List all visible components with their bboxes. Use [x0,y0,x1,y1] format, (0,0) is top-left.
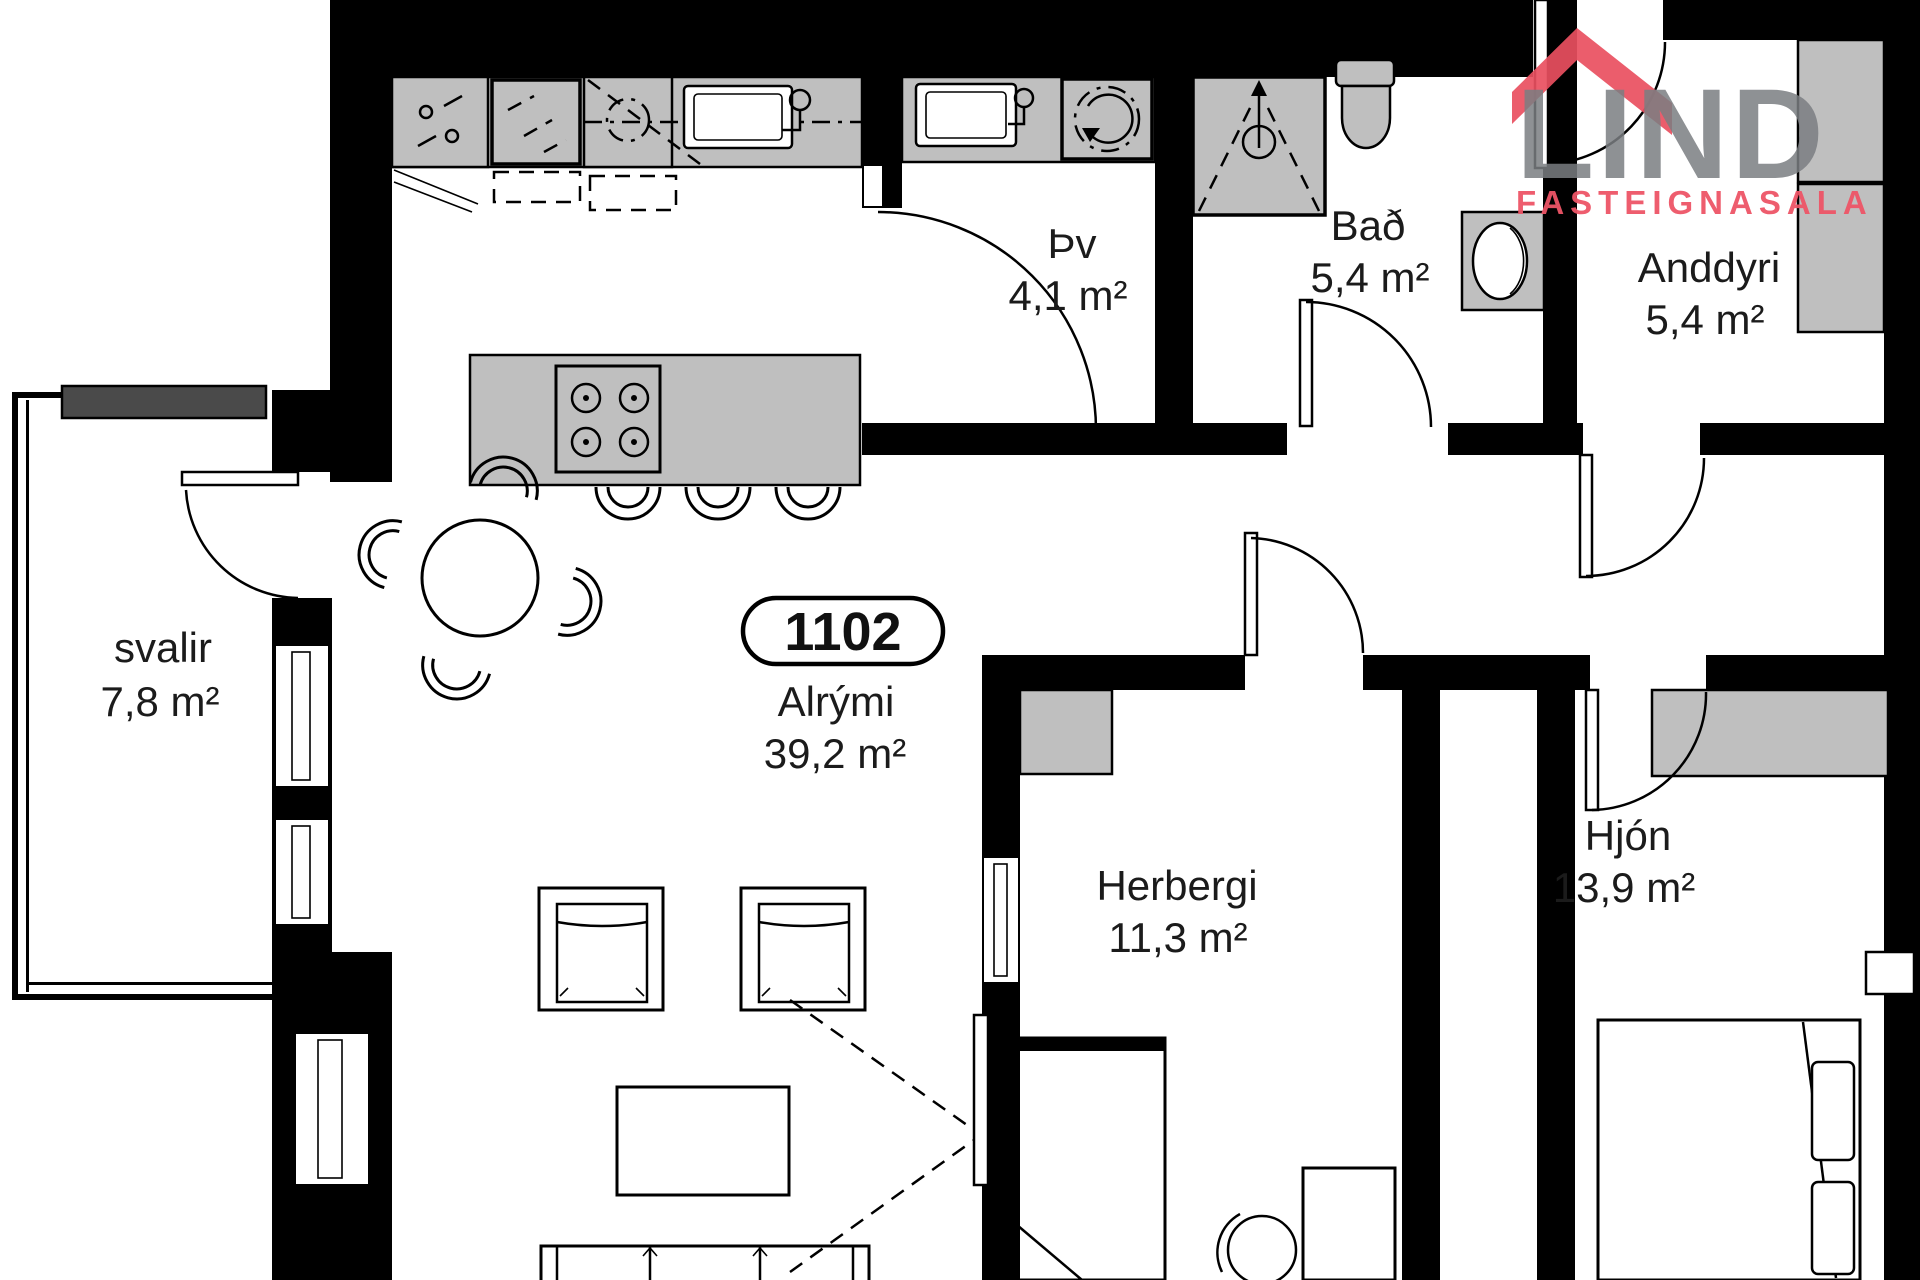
herbergi-bed-fold [1017,1225,1082,1280]
label-bad-name: Bað [1331,202,1406,249]
window-balcony-wall-1 [276,646,328,786]
balcony-rail-bottom-inner [26,982,272,985]
wall-top-right [1663,0,1884,40]
wall-hjon-left [1537,655,1575,1280]
hjon-pillow-2 [1812,1182,1854,1274]
wall-balcony-top [272,390,332,472]
balcony-rail-left [12,392,18,1000]
laundry-sink [916,84,1016,146]
herbergi-door-arc [1251,538,1363,653]
wall-herbergi-right [1402,655,1440,1280]
label-svalir-area: 7,8 m² [100,678,219,725]
tv-icon [974,1015,988,1185]
sofa-dividers [557,1246,853,1280]
kitchen-sink [684,86,792,148]
chair-icon-4 [351,513,401,587]
unit-number-badge: 1102 [743,598,943,664]
label-anddyri-area: 5,4 m² [1645,296,1764,343]
herbergi-door-leaf [1245,533,1257,655]
herbergi-bed-head [1017,1038,1165,1051]
label-hjon-name: Hjón [1585,812,1671,859]
label-thv-name: Þv [1047,220,1096,267]
windows [276,166,1443,1184]
balcony-rail-left-inner [26,400,29,992]
burner-dot-1 [583,395,589,401]
burner-dot-4 [631,439,637,445]
dishwasher-projection [590,176,676,210]
window-balcony-wall-2 [276,820,328,924]
unit-number: 1102 [784,602,901,662]
fridge [492,80,580,164]
wall-right [1884,0,1920,1280]
window-sw-wall [296,1034,368,1184]
bath-door-arc [1306,302,1431,427]
armchair-1 [539,888,663,1010]
wall-bedrooms-a [982,655,1245,690]
desk-chair-icon [1228,1216,1296,1280]
burner-dot-3 [583,439,589,445]
wall-bedrooms-c [1706,655,1920,690]
label-hjon-area: 13,9 m² [1553,864,1695,911]
stool-icon-2 [686,487,750,519]
herbergi-wardrobe [1020,690,1112,774]
entry-hall-door-leaf [1580,455,1592,577]
label-herbergi-name: Herbergi [1096,862,1257,909]
armchair-2 [741,888,865,1010]
toilet-tank [1336,60,1394,86]
label-herbergi-area: 11,3 m² [1108,914,1247,961]
tv-sightline-lower [790,1140,974,1272]
window-herbergi-wall [984,858,1018,982]
entry-hall-door-arc [1586,458,1704,576]
label-bad-area: 5,4 m² [1310,254,1429,301]
armchair-2-cushion [759,922,849,926]
balcony-planter [62,386,266,418]
coffee-table-icon [617,1087,789,1195]
vanity-basin [1473,223,1527,299]
wall-laundry-bath [1155,0,1193,455]
wall-hall-mid [1448,423,1583,455]
label-thv-area: 4,1 m² [1008,272,1127,319]
wall-kitchen-left [330,0,392,482]
dining-table-icon [422,520,538,636]
label-anddyri-name: Anddyri [1638,244,1780,291]
bath-door-leaf [1300,300,1312,426]
hjon-pillow-1 [1812,1062,1854,1160]
armchair-1-cushion [557,922,647,926]
bedroom-hjon [1586,690,1914,1280]
armchair-2-seat [759,904,849,1002]
dining-chairs [351,449,608,706]
toilet-bowl [1342,86,1390,148]
armchair-2-ticks [762,988,846,996]
corner-cabinet-door [394,170,478,212]
kitchen-island [470,355,860,485]
wall-hall-left [862,423,1287,455]
desk-icon [1303,1168,1395,1280]
living-room [351,449,988,1280]
hjon-wardrobe [1652,690,1888,776]
tv-sightline-upper [790,1000,974,1130]
stool-icon-1 [596,487,660,519]
sofa-arrows [643,1248,767,1256]
armchair-1-seat [557,904,647,1002]
bar-stools [596,487,840,519]
label-alrymi-name: Alrými [778,678,895,725]
chair-icon-2 [558,568,608,642]
wall-hall-right [1700,423,1920,455]
balcony-door-arc [186,490,298,598]
doorstop-bath [1430,426,1443,452]
floor-plan-svg: 1102 svalir 7,8 m² Þv 4,1 m² Bað 5,4 m² … [0,0,1920,1280]
label-svalir-name: svalir [114,624,212,671]
chair-icon-3 [415,656,489,706]
laundry-room [902,77,1155,162]
kitchen-cabinet [392,77,488,167]
hjon-door-leaf [1586,690,1598,810]
hjon-nightstand [1866,952,1914,994]
armchair-1-ticks [560,988,644,996]
fridge-projection [494,172,580,202]
logo-subtitle: FASTEIGNASALA [1516,184,1873,221]
doorstop-laundry [864,166,882,206]
balcony-door-leaf [182,472,298,485]
burner-dot-2 [631,395,637,401]
balcony-rail-bottom [12,994,272,1000]
label-alrymi-area: 39,2 m² [764,730,906,777]
floor-plan-page: 1102 svalir 7,8 m² Þv 4,1 m² Bað 5,4 m² … [0,0,1920,1280]
stool-icon-3 [776,487,840,519]
